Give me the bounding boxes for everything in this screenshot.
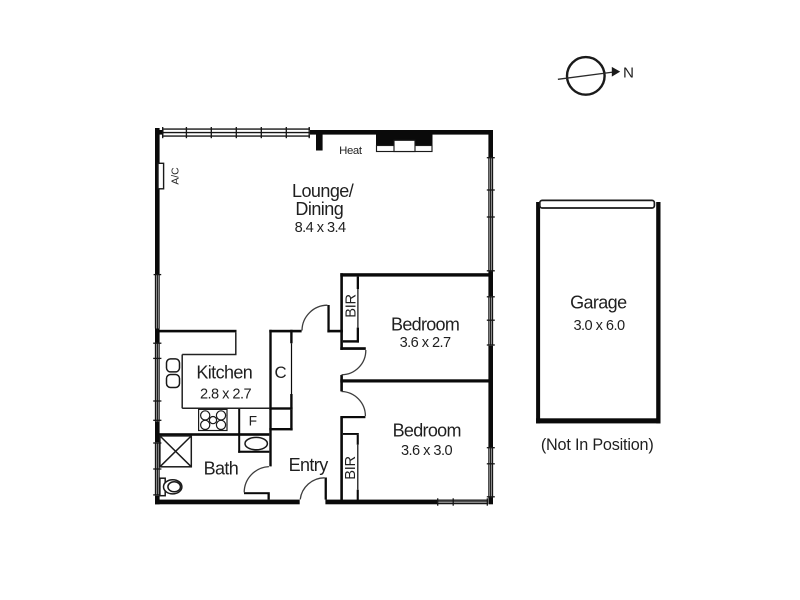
svg-text:Bath: Bath [204,458,239,478]
svg-text:Bedroom: Bedroom [393,421,461,441]
svg-text:N: N [623,64,634,81]
svg-text:Lounge/: Lounge/ [292,181,354,201]
svg-text:2.8 x 2.7: 2.8 x 2.7 [200,386,251,402]
svg-text:Entry: Entry [289,455,329,475]
svg-text:3.6 x 2.7: 3.6 x 2.7 [400,335,451,351]
svg-text:A/C: A/C [170,167,181,185]
svg-text:(Not In Position): (Not In Position) [541,436,654,454]
svg-text:Dining: Dining [295,199,343,219]
svg-text:Heat: Heat [339,145,363,157]
svg-text:BIR: BIR [343,456,359,479]
svg-text:Bedroom: Bedroom [391,315,459,335]
svg-text:8.4 x 3.4: 8.4 x 3.4 [295,220,346,236]
svg-text:3.0 x 6.0: 3.0 x 6.0 [573,318,624,334]
svg-text:3.6 x 3.0: 3.6 x 3.0 [401,443,452,459]
svg-text:BIR: BIR [344,294,360,317]
svg-text:F: F [249,414,257,429]
svg-text:Kitchen: Kitchen [196,363,252,383]
svg-text:C: C [274,363,286,382]
svg-text:Garage: Garage [570,292,627,312]
